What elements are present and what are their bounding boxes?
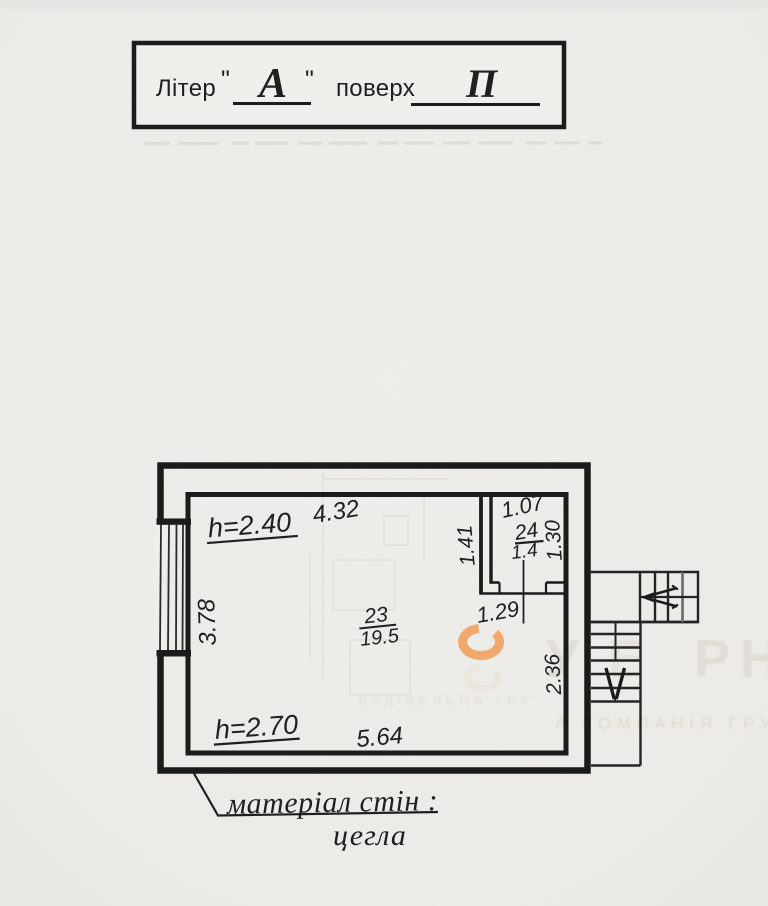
svg-text:1.30: 1.30: [541, 519, 567, 562]
svg-text:5.64: 5.64: [355, 722, 404, 753]
svg-text:цегла: цегла: [333, 819, 407, 852]
svg-text:1.4: 1.4: [510, 540, 539, 564]
svg-text:19.5: 19.5: [359, 625, 401, 651]
svg-text:П: П: [465, 61, 499, 106]
svg-text:23: 23: [362, 603, 389, 628]
svg-text:": ": [221, 66, 230, 94]
svg-text:": ": [305, 66, 314, 94]
svg-text:1.41: 1.41: [453, 524, 479, 567]
svg-text:поверх: поверх: [336, 75, 415, 102]
svg-text:матеріал стін :: матеріал стін :: [226, 784, 439, 821]
svg-text:2.36: 2.36: [541, 653, 566, 696]
svg-text:Е: Е: [608, 629, 644, 689]
svg-text:А: А: [256, 61, 287, 107]
svg-text:Літер: Літер: [156, 75, 216, 102]
svg-text:Н: Н: [740, 629, 768, 689]
svg-text:3.78: 3.78: [193, 598, 222, 646]
svg-text:Р: Р: [694, 629, 730, 689]
svg-text:БУДІВЕЛЬНА ГРУ: БУДІВЕЛЬНА ГРУ: [358, 692, 533, 708]
